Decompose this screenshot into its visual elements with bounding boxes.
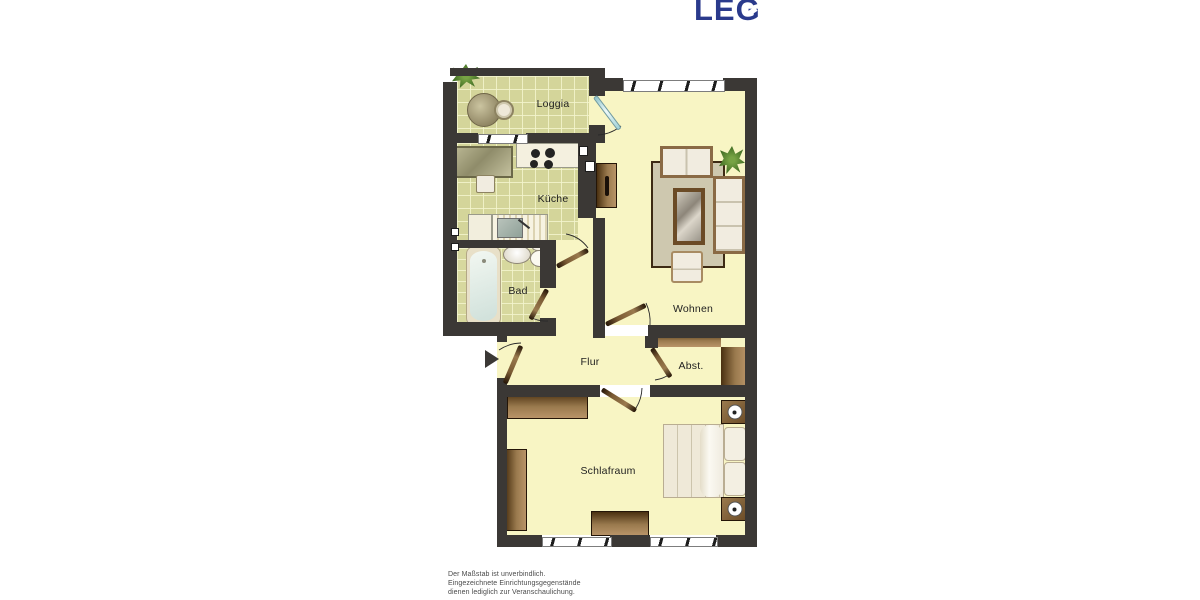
floor-plan-page: Loggia Küche Bad Flur Wohnen Abst. Schla… — [0, 0, 1200, 600]
disclaimer-line: dienen lediglich zur Veranschaulichung. — [448, 588, 581, 597]
wall — [596, 78, 623, 91]
window — [650, 537, 718, 547]
room-label-schlafraum: Schlafraum — [580, 465, 635, 477]
bed-pillow — [724, 427, 746, 461]
disclaimer-line: Eingezeichnete Einrichtungsgegenstände — [448, 579, 581, 588]
bed-pillow — [724, 462, 746, 496]
sofa-two-seater — [660, 146, 713, 178]
room-label-bad: Bad — [508, 285, 527, 297]
stove-burner — [530, 160, 538, 168]
wall — [540, 240, 556, 288]
bathtub — [466, 246, 501, 326]
dining-chair — [476, 175, 495, 193]
nightstand — [721, 497, 748, 521]
lamp-icon — [727, 502, 742, 517]
room-flur-floor — [505, 336, 645, 385]
loggia-chair — [494, 100, 514, 120]
armchair — [671, 251, 703, 283]
wall — [648, 325, 757, 338]
wall — [443, 82, 457, 336]
lamp-icon — [727, 405, 742, 420]
shaft — [451, 243, 459, 251]
window — [623, 80, 725, 92]
kueche-door-opening — [578, 218, 593, 240]
nightstand — [721, 400, 748, 424]
wall — [497, 330, 507, 342]
wall — [450, 68, 600, 76]
dresser — [504, 449, 527, 531]
bathtub-drain — [482, 259, 486, 263]
room-label-wohnen: Wohnen — [673, 303, 713, 315]
sideboard — [596, 163, 617, 208]
stove-burner — [544, 160, 553, 169]
wall — [650, 385, 757, 397]
stove-burner — [531, 149, 540, 158]
wall — [457, 240, 548, 248]
room-label-flur: Flur — [581, 356, 600, 368]
sofa-three-seater — [713, 176, 745, 254]
entrance-arrow-icon — [485, 350, 499, 368]
wall — [610, 535, 650, 547]
coffee-table — [673, 188, 705, 245]
room-label-loggia: Loggia — [537, 98, 570, 110]
sideboard-handle — [605, 176, 609, 196]
room-label-kueche: Küche — [538, 193, 569, 205]
wall — [745, 78, 757, 545]
window — [478, 134, 528, 144]
window — [542, 537, 612, 547]
stove — [516, 143, 579, 168]
disclaimer: Der Maßstab ist unverbindlich. Eingezeic… — [448, 570, 581, 597]
shaft — [579, 146, 588, 156]
bed-duvet — [700, 425, 723, 497]
wall — [497, 535, 542, 547]
kitchen-sink-counter — [492, 214, 548, 241]
stove-burner — [545, 148, 555, 158]
wall — [497, 385, 600, 397]
shaft — [585, 161, 595, 172]
wall — [593, 325, 605, 338]
wall — [645, 336, 658, 348]
wall — [716, 535, 757, 547]
wall — [497, 390, 507, 545]
shaft — [451, 228, 459, 236]
disclaimer-line: Der Maßstab ist unverbindlich. — [448, 570, 581, 579]
wall — [593, 218, 605, 325]
dresser — [591, 511, 649, 536]
wall — [443, 133, 478, 143]
kitchen-cabinet — [468, 214, 492, 241]
storage-shelf — [721, 347, 747, 389]
room-label-abstellraum: Abst. — [679, 360, 704, 372]
dining-table — [455, 146, 513, 178]
